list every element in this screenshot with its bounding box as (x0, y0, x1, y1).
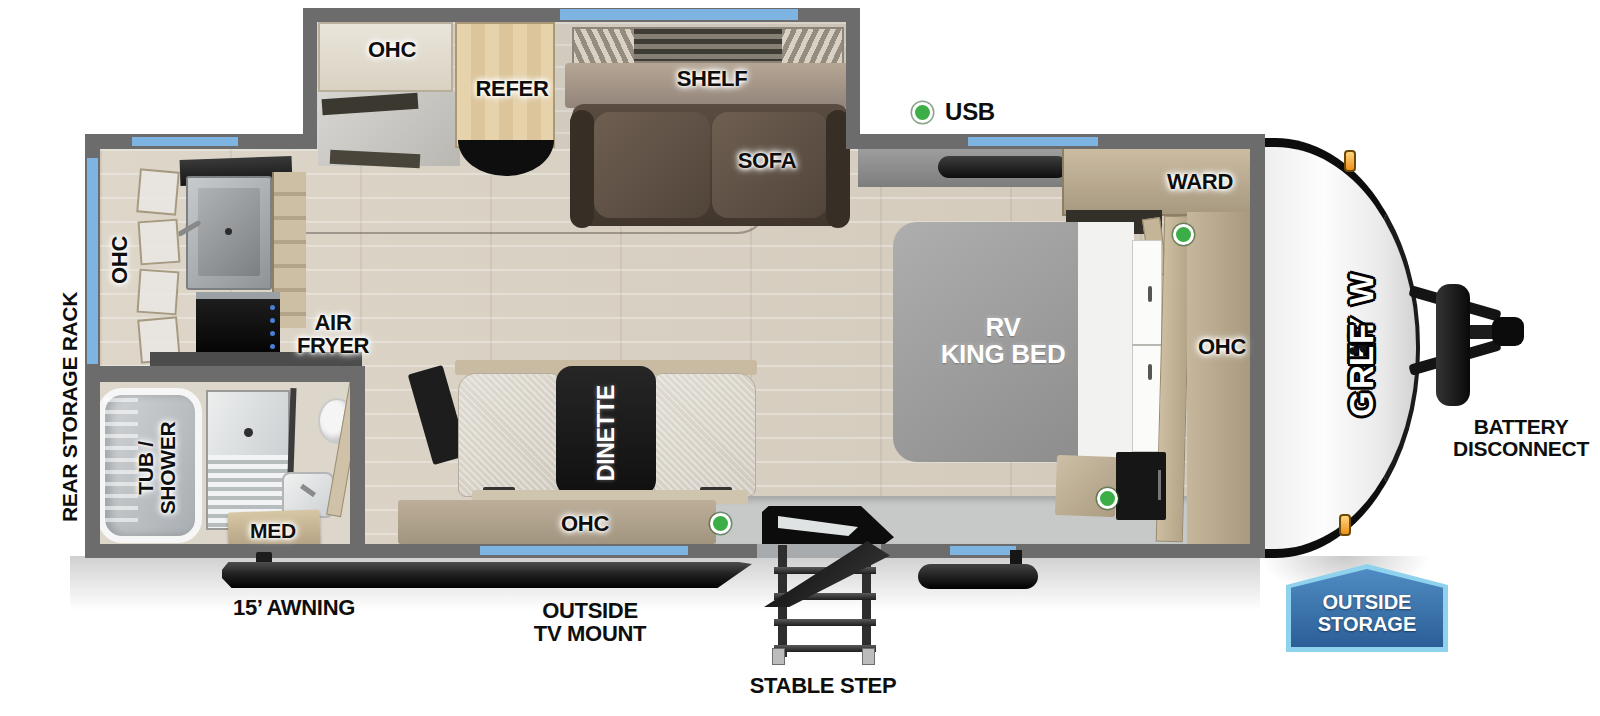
slideout-wall (846, 8, 860, 149)
step-foot (862, 648, 875, 665)
shelf-label: SHELF (677, 67, 748, 90)
tv-mount-label: OUTSIDE TV MOUNT (534, 599, 646, 645)
window (480, 546, 688, 555)
range-knob (270, 318, 275, 323)
green-indicator-icon (912, 102, 933, 123)
brand-text-part2: LF (1343, 322, 1381, 366)
battery-disconnect-label: BATTERY DISCONNECT (1453, 416, 1589, 460)
green-indicator-icon (710, 513, 731, 534)
refer-label: REFER (475, 77, 548, 100)
window (132, 137, 238, 146)
step-rung (774, 619, 876, 626)
range-knob (270, 344, 275, 349)
sofa-label: SOFA (738, 149, 797, 172)
sofa-cushion (594, 112, 710, 218)
bathroom-wall (350, 366, 365, 558)
air-fryer-label: AIR FRYER (297, 311, 369, 357)
dinette-bench (458, 373, 560, 497)
kitchen-cabinet-door (136, 168, 180, 215)
awning-label: 15’ AWNING (233, 596, 355, 619)
rear-storage-rack-label: REAR STORAGE RACK (59, 292, 81, 522)
bedroom-ohc-cabinet (1187, 212, 1251, 544)
wall (1250, 134, 1265, 558)
king-bed-label: RV KING BED (941, 314, 1066, 369)
marker-light-icon (1344, 150, 1356, 172)
step-foot (772, 648, 785, 665)
slideout-ohc-label: OHC (368, 38, 416, 61)
dinette-label: DINETTE (594, 385, 618, 481)
stable-step-label: STABLE STEP (750, 674, 897, 697)
air-fryer-trim (196, 292, 280, 299)
bedroom-ohc-label: OHC (1198, 335, 1246, 358)
medicine-cabinet-label: MED (250, 520, 296, 542)
grab-bar (918, 564, 1038, 589)
window (87, 158, 98, 364)
hitch-coupler (1492, 317, 1524, 346)
bedroom-cabinet-divider (1132, 344, 1162, 346)
brand-logo: GREY W LF (1338, 194, 1386, 494)
range-knob (270, 331, 275, 336)
dinette-overhead-cabinet (398, 500, 716, 544)
kitchen-ohc-label: OHC (108, 236, 131, 284)
bedroom-cabinet-open (1132, 240, 1162, 452)
window (968, 137, 1098, 146)
green-indicator-icon (1173, 224, 1194, 245)
kitchen-cabinet-door (137, 269, 180, 316)
cabinet-handle (1158, 470, 1161, 500)
slideout-wall (303, 8, 317, 149)
cabinet-handle (1148, 286, 1152, 302)
green-indicator-icon (1097, 488, 1118, 509)
shower-door-handle (244, 428, 253, 437)
hitch-jack (1436, 284, 1470, 406)
sofa-armrest (570, 110, 594, 228)
blind-fan (782, 29, 842, 63)
usb-label: USB (945, 99, 995, 124)
sink-drain (225, 228, 232, 235)
awning-bar (222, 562, 752, 588)
outside-storage-badge-inner: OUTSIDE STORAGE (1291, 569, 1443, 647)
outside-storage-label: OUTSIDE STORAGE (1318, 581, 1417, 635)
range-knob (270, 305, 275, 310)
step-rung (774, 645, 876, 652)
kitchen-cabinet-door (138, 219, 181, 266)
dinette-bench (654, 373, 756, 497)
tub-slats (104, 398, 138, 530)
window (950, 546, 1016, 555)
cabinet-handle (1148, 364, 1152, 380)
wardrobe-label: WARD (1167, 170, 1233, 193)
window (560, 9, 798, 20)
dinette-ohc-label: OHC (561, 512, 609, 535)
floorplan-canvas: GREY W LF BATTERY DISCONNECT OUTSIDE STO… (0, 0, 1600, 716)
bed-head-bar (938, 156, 1068, 178)
king-bed-bedding (1078, 222, 1134, 462)
bathroom-wall (85, 366, 363, 382)
marker-light-icon (1339, 514, 1351, 536)
blind-fan (574, 29, 634, 63)
tub-shower-label: TUB / SHOWER (135, 422, 179, 515)
